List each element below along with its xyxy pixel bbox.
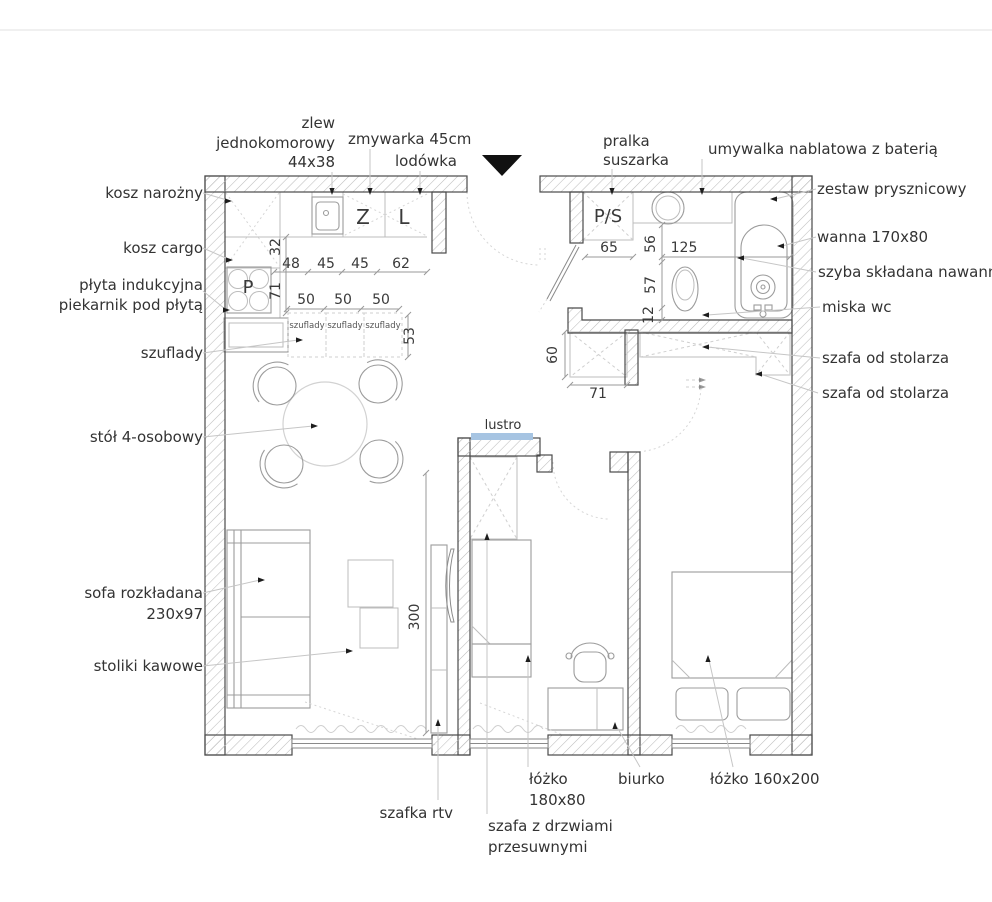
entrance-door-swing [467, 192, 540, 265]
dim-71-kitchen: 71 [268, 282, 284, 300]
label-sofa-line2: 230x97 [146, 605, 203, 623]
hallway-wardrobes [570, 332, 790, 390]
bed-180x80 [472, 540, 531, 677]
label-plyta-line1: płyta indukcyjna [79, 276, 203, 294]
wall-bedroom-partition [628, 452, 640, 755]
desk-chair [566, 643, 614, 682]
wall-bedroom1-door-pier [537, 455, 552, 472]
dim-71-hall: 71 [589, 386, 607, 402]
label-plyta-line2: piekarnik pod płytą [59, 296, 203, 314]
dim-125: 125 [671, 240, 698, 256]
label-kosz-narozny: kosz narożny [105, 184, 203, 202]
dim-65: 65 [600, 240, 618, 256]
label-szafa-przesuwna-line2: przesuwnymi [488, 838, 588, 856]
label-lodowka: lodówka [395, 152, 457, 170]
label-zmywarka: zmywarka 45cm [348, 130, 471, 148]
radiator-living [296, 726, 426, 733]
door-swings [467, 192, 701, 519]
radiator-bedroom1 [473, 726, 543, 733]
bathroom-door [539, 245, 579, 312]
fridge-marker: L [398, 205, 410, 229]
sink-drain-icon [324, 211, 329, 216]
mirror [471, 433, 533, 440]
label-wanna: wanna 170x80 [817, 228, 928, 246]
drawer-unit-label: szuflady [365, 321, 400, 331]
wall-right [792, 176, 812, 755]
dim-50a: 50 [297, 292, 315, 308]
label-szuflady: szuflady [141, 344, 203, 362]
wall-hall-stub [625, 330, 638, 385]
drawer-unit-label: szuflady [327, 321, 362, 331]
wall-bedroom1-door-jamb [610, 452, 628, 472]
label-zlew-line1: zlew [301, 114, 335, 132]
wall-bathroom-left-pier [570, 192, 583, 243]
wall-left [205, 176, 225, 755]
wall-bottom-1 [205, 735, 292, 755]
bedroom-1 [470, 457, 623, 735]
label-zestaw-prysznicowy: zestaw prysznicowy [817, 180, 967, 198]
label-lozko160: łóżko 160x200 [710, 770, 820, 788]
floor-plan-page: szuflady szuflady szuflady Z L P [0, 0, 992, 902]
dim-50b: 50 [334, 292, 352, 308]
hob-marker: P [243, 277, 254, 298]
bedroom2-door-swing [634, 385, 701, 452]
windows [292, 726, 750, 749]
dim-50c: 50 [372, 292, 390, 308]
label-umywalka: umywalka nablatowa z baterią [708, 140, 938, 158]
radiator-bedroom2 [676, 726, 746, 733]
kitchen-sink [312, 197, 343, 234]
bedroom1-door-swing [553, 462, 610, 519]
dim-32: 32 [268, 238, 284, 256]
label-sofa-line1: sofa rozkładana [84, 584, 203, 602]
label-szafa-przesuwna-line1: szafa z drzwiami [488, 817, 613, 835]
dim-300: 300 [407, 604, 423, 631]
dim-45a: 45 [317, 256, 335, 272]
kitchen: szuflady szuflady szuflady Z L P [224, 192, 427, 357]
drawer-cabinet [224, 318, 288, 352]
entrance-marker-icon [482, 155, 522, 176]
dim-45b: 45 [351, 256, 369, 272]
bathtub [735, 192, 793, 318]
label-stol: stół 4-osobowy [90, 428, 203, 446]
dining-chairs [253, 360, 403, 488]
label-lozko180-line2: 180x80 [529, 791, 586, 809]
wall-top-kitchen [205, 176, 467, 192]
label-lozko180-line1: łóżko [529, 770, 568, 788]
wall-bottom-3 [548, 735, 672, 755]
label-szafka-rtv: szafka rtv [380, 804, 454, 822]
label-szafa-stolarz-bottom: szafa od stolarza [822, 384, 949, 402]
label-biurko: biurko [618, 770, 665, 788]
label-zlew-line2: jednokomorowy [215, 134, 335, 152]
wardrobe-right [640, 332, 790, 375]
dim-60: 60 [545, 346, 561, 364]
sliding-direction-arrows [686, 378, 706, 390]
washer-dryer-marker: P/S [594, 206, 622, 227]
dim-53: 53 [402, 327, 418, 345]
drawer-unit-label: szuflady [289, 321, 324, 331]
toilet [672, 267, 698, 311]
dim-62: 62 [392, 256, 410, 272]
dim-48: 48 [282, 256, 300, 272]
label-stoliki-kawowe: stoliki kawowe [94, 657, 203, 675]
wall-bottom-4 [750, 735, 812, 755]
washbasin [652, 192, 684, 224]
wall-top-bathroom [540, 176, 812, 192]
label-miska-wc: miska wc [822, 298, 892, 316]
rtv-cabinet [431, 545, 447, 733]
wall-entrance-left-pier [432, 192, 446, 253]
sliding-wardrobe [470, 457, 517, 539]
coffee-table-2 [360, 608, 398, 648]
label-pralka-line2: suszarka [603, 151, 669, 169]
dim-56: 56 [643, 235, 659, 253]
living-area [227, 530, 454, 745]
washer-dryer-unit: P/S [583, 192, 633, 240]
bathroom-counter [633, 192, 732, 223]
floor-plan-drawing: szuflady szuflady szuflady Z L P [0, 0, 992, 902]
sofa [227, 530, 310, 708]
wall-bedroom1-left [458, 438, 470, 755]
wall-bedroom1-top [458, 438, 540, 456]
coffee-table-1 [348, 560, 393, 607]
bed-160x200 [672, 572, 792, 720]
label-szafa-stolarz-top: szafa od stolarza [822, 349, 949, 367]
drawer-units: szuflady szuflady szuflady [288, 313, 402, 357]
label-lustro: lustro [485, 418, 522, 433]
dining-table [283, 382, 367, 466]
label-kosz-cargo: kosz cargo [123, 239, 203, 257]
dishwasher-marker: Z [356, 205, 370, 229]
label-pralka-line1: pralka [603, 132, 650, 150]
dim-57: 57 [643, 276, 659, 294]
dim-12: 12 [641, 306, 657, 324]
bedroom-2 [672, 572, 792, 720]
desk [548, 688, 623, 730]
label-szyba: szyba składana nawann [818, 263, 992, 281]
label-zlew-line3: 44x38 [288, 153, 335, 171]
dining-area [253, 360, 403, 488]
